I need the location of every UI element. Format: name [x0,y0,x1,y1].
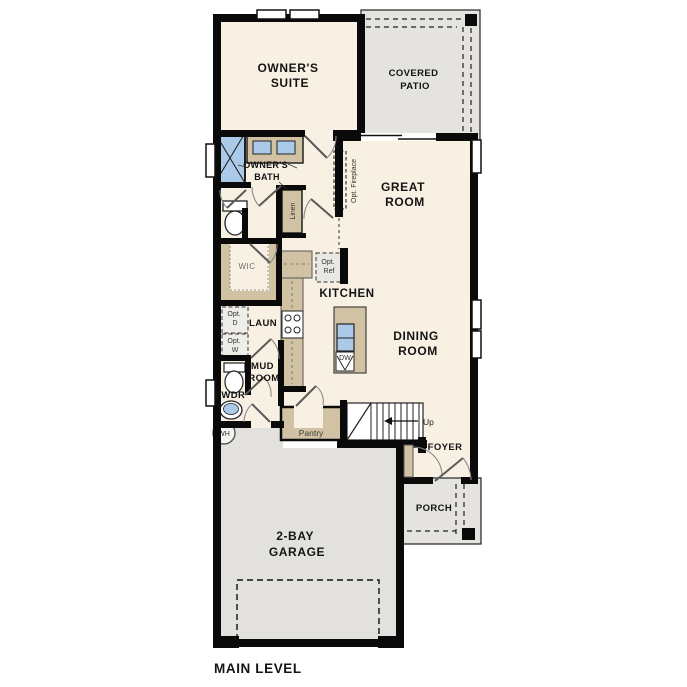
stairs-up-label: Up [423,417,434,427]
vanity [247,135,303,163]
room-label-porch: PORCH [416,503,452,514]
floorplan-svg: Opt. Ref DW Opt. D Opt. W [0,0,687,687]
linen-label: Linen [290,202,297,219]
pantry-closet: Pantry [280,406,343,441]
vanity-sink-right [277,141,295,154]
opt-ref-box: Opt. Ref [316,253,343,282]
dishwasher: DW [336,352,354,371]
plan-title: MAIN LEVEL [214,661,302,676]
great-room-window [472,140,481,173]
pantry-label: Pantry [299,428,324,438]
opt-fireplace-label: Opt. Fireplace [351,159,358,203]
garage-entry-door [404,445,413,477]
sliding-door [361,133,436,141]
room-label-kitchen: KITCHEN [319,288,374,300]
floorplan-canvas: Opt. Ref DW Opt. D Opt. W [0,0,687,687]
suite-window-left [257,10,286,19]
kitchen-island: DW [334,307,366,373]
staircase: Up [347,403,434,440]
powder-sink-icon [220,401,242,419]
room-label-foyer: FOYER [428,442,463,453]
room-label-powder: PWDR [215,390,246,401]
room-label-laundry: LAUN [249,318,277,329]
dining-window-2 [472,331,481,358]
bath-window [206,144,215,177]
room-label-dining-room: DINING ROOM [393,329,443,358]
linen-closet: Linen [282,190,302,233]
dishwasher-label: DW [339,355,351,362]
room-label-mud-room: MUD ROOM [248,361,279,384]
opt-dryer-label: Opt. [227,311,240,318]
range-cooktop [282,311,303,338]
room-label-great-room: GREAT ROOM [381,180,429,209]
opt-ref-label: Opt. [321,259,334,266]
patio-post [465,14,477,26]
powder-toilet-icon [224,363,245,393]
suite-window-right [290,10,319,19]
room-label-wic: WIC [238,262,255,271]
powder-window [206,380,215,406]
dining-window-1 [472,300,481,329]
opt-washer-label: Opt. [227,338,240,345]
vanity-sink-left [253,141,271,154]
laundry-appliances: Opt. D Opt. W [222,307,248,359]
porch-post [462,528,475,540]
